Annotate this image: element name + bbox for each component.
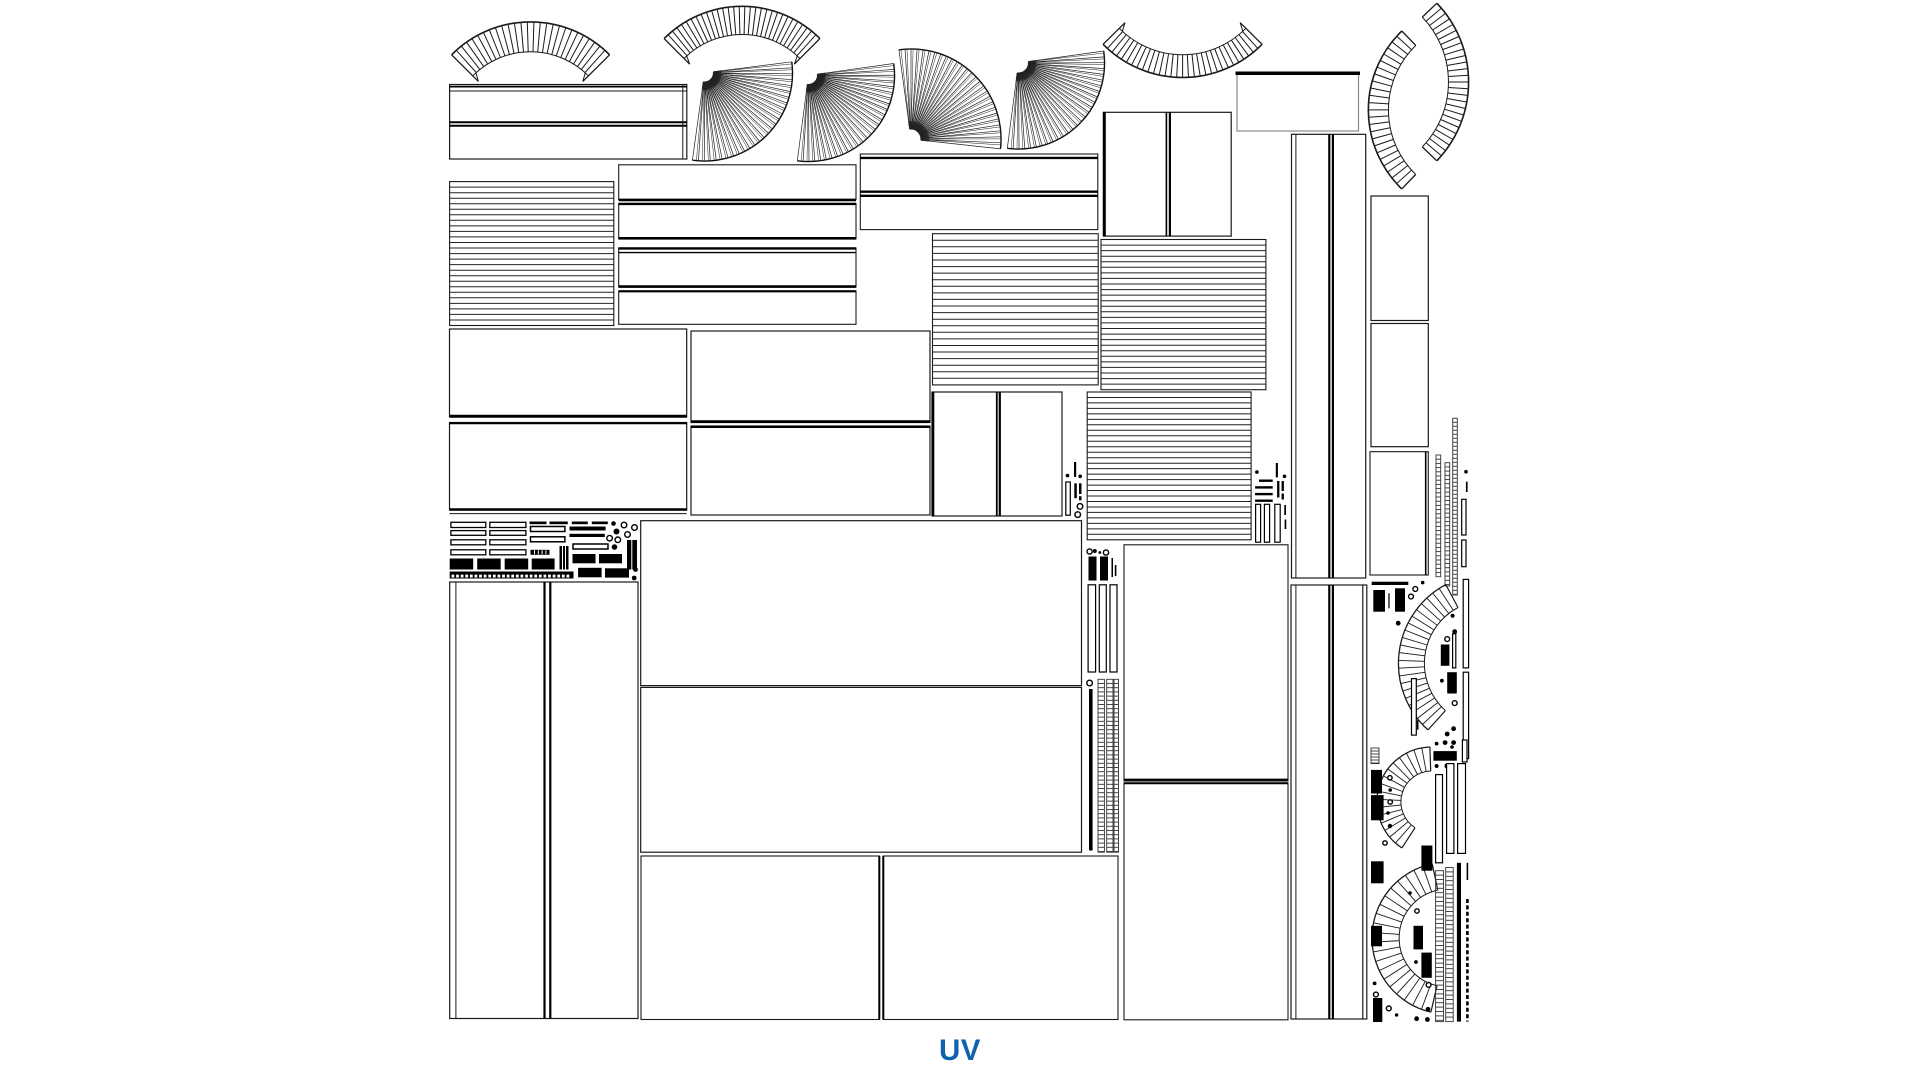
- svg-text:UV: UV: [939, 1034, 981, 1067]
